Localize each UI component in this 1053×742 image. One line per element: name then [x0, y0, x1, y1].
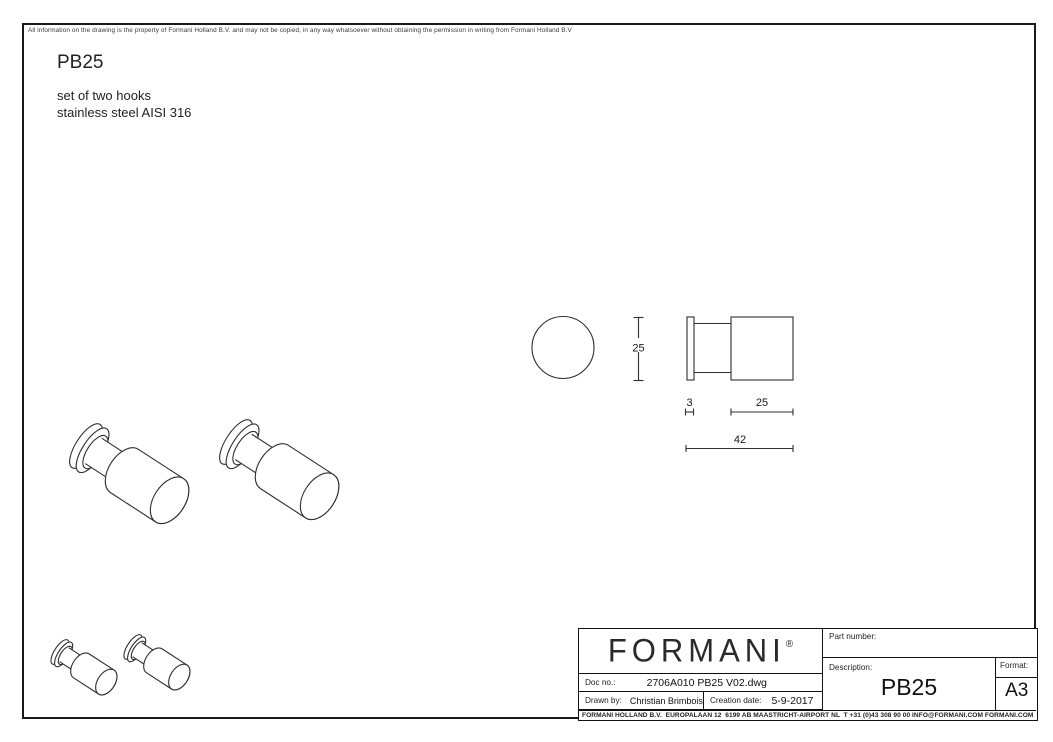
doc-number-row: Doc no.: 2706A010 PB25 V02.dwg — [579, 674, 823, 692]
technical-drawing-sheet: { "page": { "disclaimer": "All informati… — [0, 0, 1053, 742]
dimension-diameter-label: 25 — [632, 343, 644, 355]
company-address-row: FORMANI HOLLAND B.V. EUROPALAAN 12 6199 … — [579, 710, 1036, 721]
format-label: Format: — [996, 658, 1038, 670]
drawn-by-value: Christian Brimbois — [630, 696, 703, 706]
format-label-box: Format: — [996, 658, 1038, 678]
dimension-total-length-label: 42 — [734, 434, 746, 446]
creation-date-label: Creation date: — [704, 696, 761, 705]
description-label: Description: — [823, 658, 995, 672]
product-description: set of two hooks stainless steel AISI 31… — [57, 87, 191, 121]
product-description-line1: set of two hooks — [57, 87, 191, 104]
dimension-flange-thickness-label: 3 — [686, 397, 692, 409]
dimension-total-length — [686, 445, 793, 452]
side-view — [687, 317, 793, 380]
front-view-circle — [532, 317, 594, 379]
product-title: PB25 — [57, 52, 103, 74]
creation-date-value: 5-9-2017 — [771, 695, 813, 707]
dimension-cylinder-length — [731, 409, 793, 416]
side-view-flange — [687, 317, 694, 380]
part-number-cell: Part number: — [823, 629, 1038, 658]
drawn-by-label: Drawn by: — [579, 696, 622, 705]
formani-logo: FORMANI® — [608, 632, 793, 670]
doc-number-label: Doc no.: — [579, 678, 616, 687]
dimension-flange-thickness — [686, 409, 694, 416]
part-number-label: Part number: — [823, 629, 1038, 641]
copyright-disclaimer: All information on the drawing is the pr… — [28, 27, 572, 34]
product-description-line2: stainless steel AISI 316 — [57, 104, 191, 121]
drawn-by-cell: Drawn by: Christian Brimbois — [579, 692, 704, 709]
dimension-cylinder-length-label: 25 — [756, 397, 768, 409]
format-value: A3 — [996, 680, 1038, 702]
formani-logo-text: FORMANI — [608, 632, 786, 669]
company-address-text: FORMANI HOLLAND B.V. EUROPALAAN 12 6199 … — [579, 712, 1033, 719]
logo-cell: FORMANI® — [579, 629, 823, 674]
drawn-by-row: Drawn by: Christian Brimbois Creation da… — [579, 692, 823, 710]
orthographic-views-drawing: 25 3 25 42 — [520, 300, 820, 465]
side-view-cylinder — [731, 317, 793, 380]
registered-trademark-icon: ® — [786, 638, 793, 650]
description-value: PB25 — [823, 674, 995, 701]
title-block: FORMANI® Doc no.: 2706A010 PB25 V02.dwg … — [578, 628, 1038, 721]
creation-date-cell: Creation date: 5-9-2017 — [704, 692, 822, 709]
doc-number-value: 2706A010 PB25 V02.dwg — [647, 677, 791, 689]
format-cell: Format: A3 — [996, 658, 1038, 710]
description-cell: Description: PB25 — [823, 658, 996, 710]
